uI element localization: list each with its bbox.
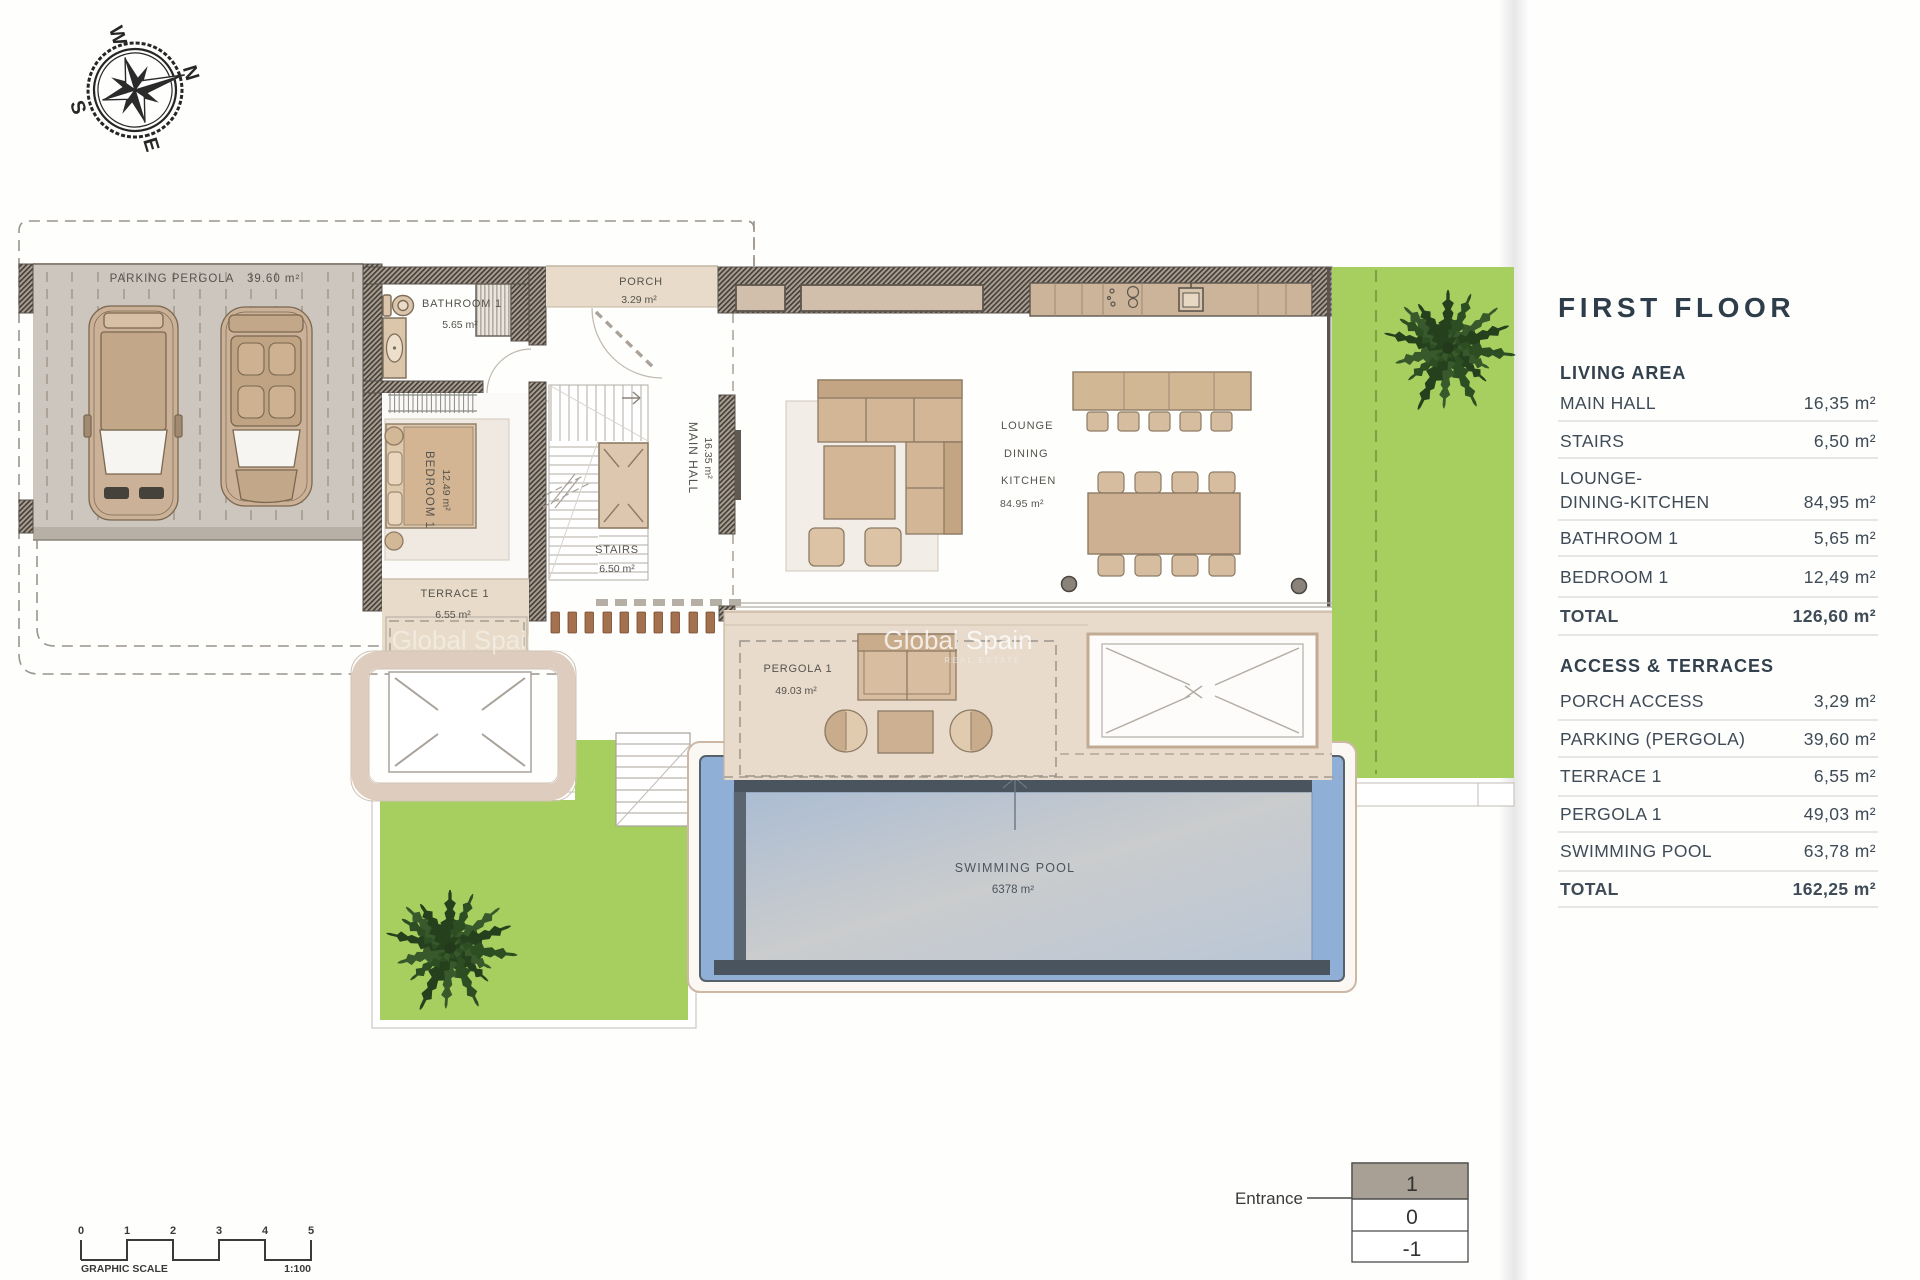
svg-text:PERGOLA 1: PERGOLA 1: [764, 663, 833, 675]
svg-text:5: 5: [308, 1225, 314, 1237]
svg-text:49.03 m²: 49.03 m²: [775, 685, 817, 697]
svg-text:TOTAL: TOTAL: [1560, 606, 1619, 626]
svg-text:SWIMMING POOL: SWIMMING POOL: [1560, 841, 1712, 861]
svg-text:Entrance: Entrance: [1235, 1189, 1303, 1208]
svg-text:39,60 m²: 39,60 m²: [1804, 729, 1876, 749]
svg-text:16,35 m²: 16,35 m²: [1804, 393, 1876, 413]
svg-text:3,29 m²: 3,29 m²: [1814, 691, 1876, 711]
svg-text:BATHROOM 1: BATHROOM 1: [1560, 528, 1678, 548]
svg-text:PARKING PERGOLA 39.60 m²: PARKING PERGOLA 39.60 m²: [110, 273, 301, 285]
svg-text:5.65 m²: 5.65 m²: [442, 319, 478, 331]
svg-text:MAIN HALL: MAIN HALL: [1560, 393, 1656, 413]
svg-text:BEDROOM 1: BEDROOM 1: [423, 451, 435, 529]
svg-text:84.95 m²: 84.95 m²: [1000, 498, 1044, 510]
svg-text:KITCHEN: KITCHEN: [1001, 475, 1056, 487]
svg-text:TOTAL: TOTAL: [1560, 879, 1619, 899]
svg-text:1:100: 1:100: [284, 1263, 311, 1275]
svg-text:0: 0: [1406, 1206, 1418, 1229]
svg-text:49,03 m²: 49,03 m²: [1804, 804, 1876, 824]
svg-text:TERRACE 1: TERRACE 1: [421, 588, 490, 600]
svg-text:LOUNGE-: LOUNGE-: [1560, 468, 1643, 488]
svg-text:REAL ESTATE: REAL ESTATE: [945, 656, 1022, 665]
svg-text:3.29 m²: 3.29 m²: [621, 294, 657, 306]
svg-text:Global Spain: Global Spain: [884, 625, 1033, 655]
svg-text:12.49 m²: 12.49 m²: [440, 469, 452, 511]
svg-text:MAIN HALL: MAIN HALL: [686, 422, 700, 494]
svg-text:63,78 m²: 63,78 m²: [1804, 841, 1876, 861]
svg-text:6,55 m²: 6,55 m²: [1814, 766, 1876, 786]
svg-text:BEDROOM 1: BEDROOM 1: [1560, 567, 1669, 587]
svg-text:1: 1: [1406, 1173, 1418, 1196]
svg-text:2: 2: [170, 1225, 176, 1237]
svg-text:16.35 m²: 16.35 m²: [702, 437, 714, 479]
svg-text:6,50 m²: 6,50 m²: [1814, 431, 1876, 451]
svg-text:LOUNGE: LOUNGE: [1001, 420, 1053, 432]
svg-text:1: 1: [124, 1225, 130, 1237]
svg-text:PERGOLA 1: PERGOLA 1: [1560, 804, 1662, 824]
svg-text:BATHROOM 1: BATHROOM 1: [422, 298, 502, 310]
svg-text:STAIRS: STAIRS: [595, 544, 639, 556]
svg-text:PORCH ACCESS: PORCH ACCESS: [1560, 691, 1704, 711]
svg-text:6.50 m²: 6.50 m²: [599, 563, 635, 575]
svg-text:PARKING (PERGOLA): PARKING (PERGOLA): [1560, 729, 1745, 749]
svg-text:DINING: DINING: [1004, 448, 1049, 460]
svg-text:126,60 m²: 126,60 m²: [1793, 606, 1876, 626]
svg-text:DINING-KITCHEN: DINING-KITCHEN: [1560, 492, 1710, 512]
svg-text:3: 3: [216, 1225, 222, 1237]
svg-text:TERRACE 1: TERRACE 1: [1560, 766, 1662, 786]
svg-text:6378 m²: 6378 m²: [992, 884, 1034, 896]
svg-text:STAIRS: STAIRS: [1560, 431, 1624, 451]
svg-text:SWIMMING POOL: SWIMMING POOL: [955, 861, 1075, 875]
svg-text:4: 4: [262, 1225, 269, 1237]
svg-text:FIRST FLOOR: FIRST FLOOR: [1558, 292, 1795, 323]
svg-text:Global Spain: Global Spain: [392, 625, 541, 655]
svg-text:GRAPHIC SCALE: GRAPHIC SCALE: [81, 1263, 168, 1275]
svg-text:5,65 m²: 5,65 m²: [1814, 528, 1876, 548]
svg-text:ACCESS & TERRACES: ACCESS & TERRACES: [1560, 656, 1774, 676]
svg-text:LIVING AREA: LIVING AREA: [1560, 363, 1686, 383]
svg-text:0: 0: [78, 1225, 84, 1237]
svg-text:6.55 m²: 6.55 m²: [435, 609, 471, 621]
svg-text:-1: -1: [1403, 1238, 1422, 1261]
svg-text:12,49 m²: 12,49 m²: [1804, 567, 1876, 587]
svg-text:PORCH: PORCH: [619, 276, 663, 288]
svg-text:84,95 m²: 84,95 m²: [1804, 492, 1876, 512]
svg-text:162,25 m²: 162,25 m²: [1793, 879, 1876, 899]
